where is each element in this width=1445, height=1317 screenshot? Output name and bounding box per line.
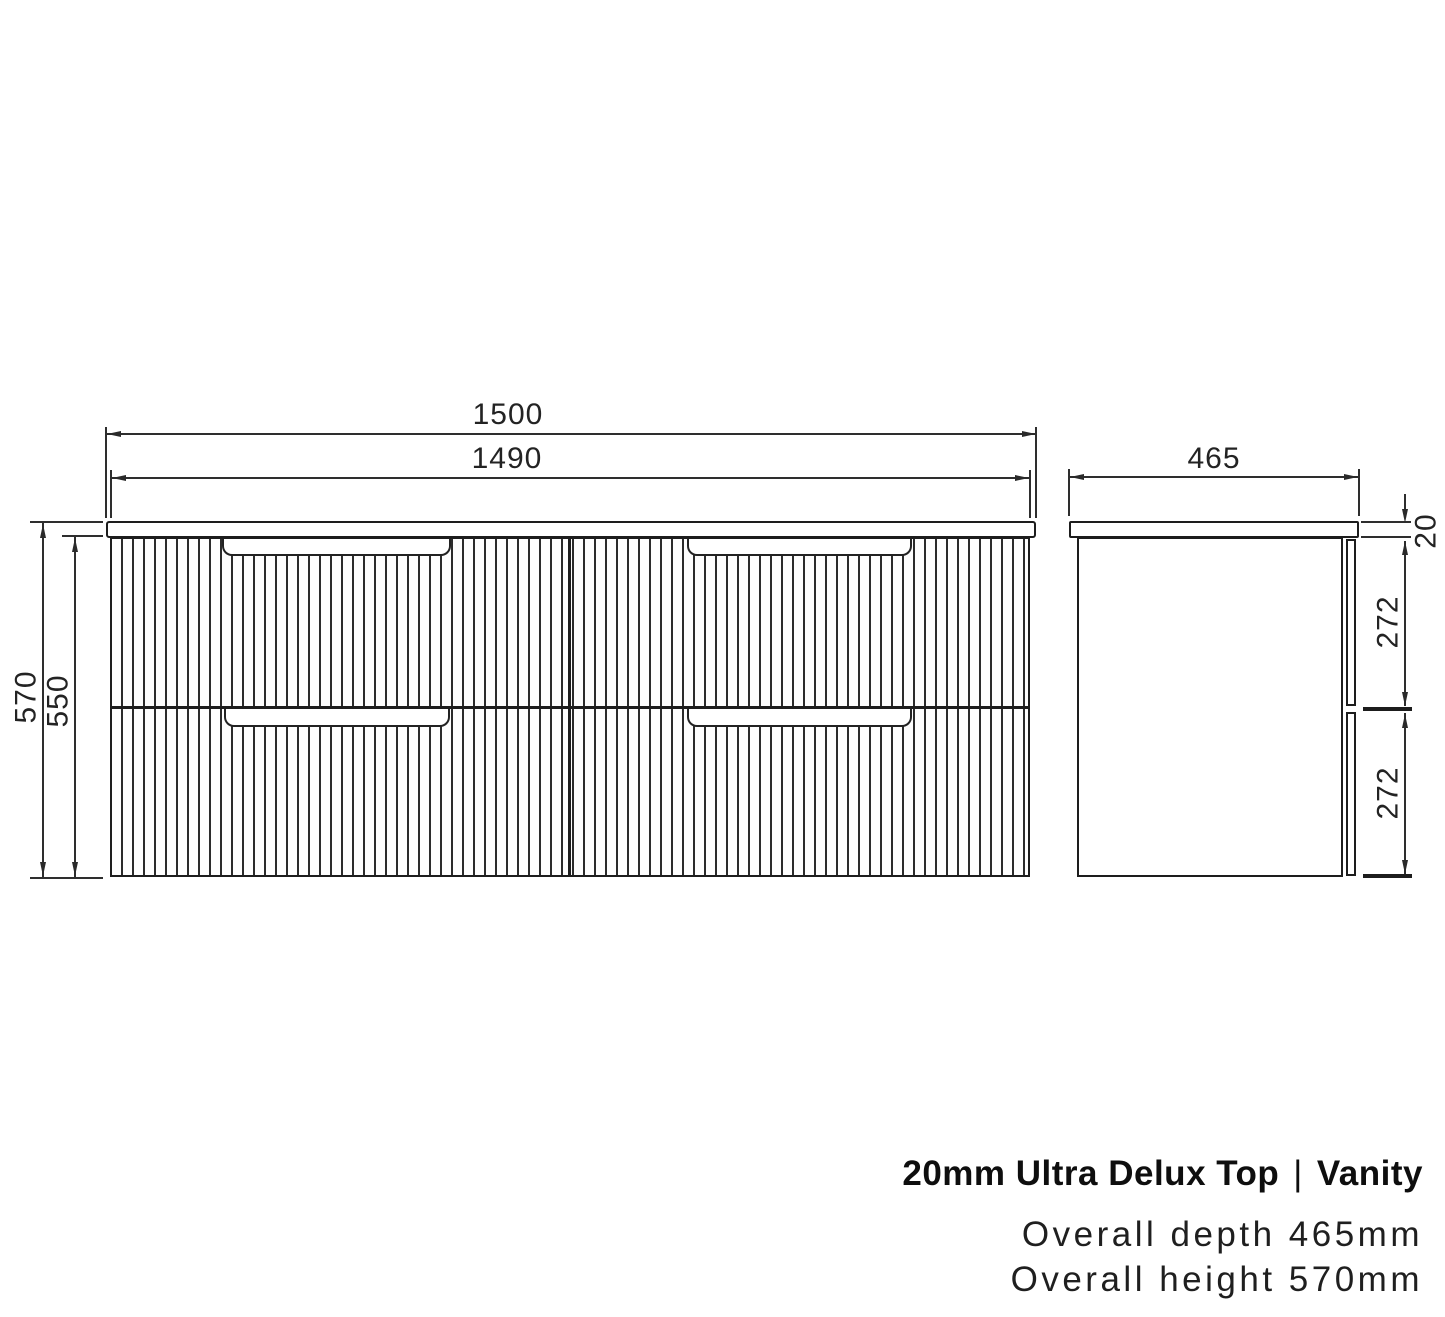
arrowhead-down-icon xyxy=(1402,509,1408,523)
front-cabinet xyxy=(110,537,1030,877)
dim-cabinet-width-label: 1490 xyxy=(472,443,543,474)
arrowhead-left-icon xyxy=(112,475,126,481)
arrowhead-down-icon xyxy=(72,862,78,876)
extension-line xyxy=(1035,427,1037,518)
arrowhead-up-icon xyxy=(1402,714,1408,728)
arrowhead-down-icon xyxy=(1402,860,1408,874)
extension-line xyxy=(105,427,107,518)
caption-spec-height: Overall height 570mm xyxy=(1011,1260,1423,1300)
dimension-tick xyxy=(1363,707,1412,711)
dimension-line xyxy=(111,477,1030,479)
side-countertop xyxy=(1069,521,1359,538)
extension-line xyxy=(1361,536,1411,538)
extension-line xyxy=(62,535,103,537)
arrowhead-right-icon xyxy=(1015,475,1029,481)
dimension-tick xyxy=(1363,874,1412,878)
dimension-line xyxy=(1069,476,1359,478)
arrowhead-down-icon xyxy=(1402,692,1408,706)
dim-overall-height-label: 570 xyxy=(11,670,42,723)
leader-line xyxy=(1404,494,1406,510)
caption-title: 20mm Ultra Delux Top | Vanity xyxy=(902,1154,1423,1194)
dim-top-thickness-label: 20 xyxy=(1411,513,1442,548)
arrowhead-left-icon xyxy=(1070,474,1084,480)
arrowhead-left-icon xyxy=(107,431,121,437)
side-cabinet xyxy=(1077,537,1343,877)
drawer-handle-top-right xyxy=(687,539,912,556)
front-countertop xyxy=(106,521,1036,538)
arrowhead-up-icon xyxy=(40,524,46,538)
drawer-handle-bottom-left xyxy=(224,709,450,727)
dimension-line xyxy=(106,433,1036,435)
caption-spec-depth: Overall depth 465mm xyxy=(1022,1215,1423,1255)
dim-cabinet-height-label: 550 xyxy=(43,674,74,727)
arrowhead-up-icon xyxy=(72,538,78,552)
extension-line xyxy=(30,521,103,523)
vanity-technical-drawing: 1500 1490 570 550 xyxy=(0,0,1445,1317)
dim-depth-label: 465 xyxy=(1187,443,1240,474)
caption-product: 20mm Ultra Delux Top xyxy=(902,1154,1279,1194)
arrowhead-right-icon xyxy=(1022,431,1036,437)
arrowhead-right-icon xyxy=(1344,474,1358,480)
extension-line xyxy=(30,877,103,879)
dim-overall-width-label: 1500 xyxy=(473,399,544,430)
drawer-handle-bottom-right xyxy=(687,709,912,727)
caption-category: Vanity xyxy=(1317,1154,1423,1194)
dim-drawer-upper-label: 272 xyxy=(1373,595,1404,648)
dim-drawer-lower-label: 272 xyxy=(1373,766,1404,819)
arrowhead-down-icon xyxy=(40,862,46,876)
drawer-handle-top-left xyxy=(222,539,451,556)
arrowhead-up-icon xyxy=(1402,541,1408,555)
caption-separator: | xyxy=(1293,1154,1303,1194)
side-drawer-front-lower xyxy=(1346,712,1356,876)
side-drawer-front-upper xyxy=(1346,539,1356,706)
